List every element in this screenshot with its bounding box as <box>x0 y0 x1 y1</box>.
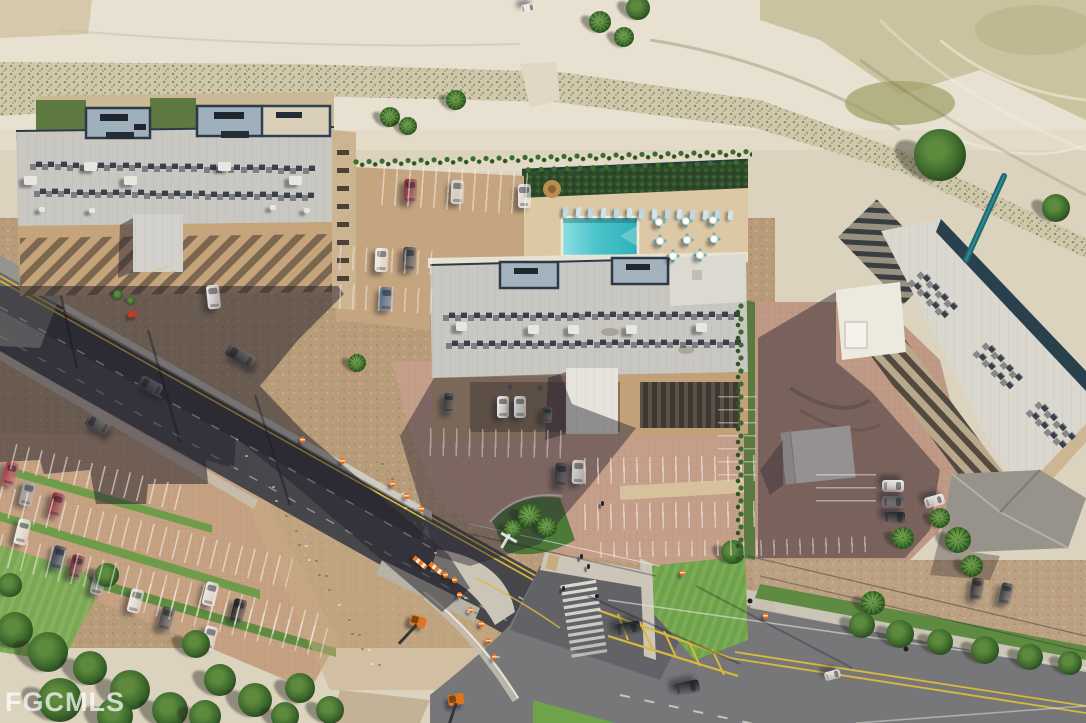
ac-unit <box>1006 381 1014 389</box>
car-rear-window <box>160 625 169 630</box>
ac-unit <box>308 192 314 198</box>
ac-unit <box>624 339 630 345</box>
palm-canopy <box>961 555 983 577</box>
ac-unit <box>661 339 667 345</box>
car <box>224 343 257 369</box>
ac-unit <box>247 164 253 170</box>
ac-unit <box>150 190 156 196</box>
palm-canopy <box>892 527 914 549</box>
ac-unit <box>548 312 554 318</box>
ac-unit <box>110 162 116 168</box>
parking-stripes <box>339 246 440 275</box>
rooftop-vent <box>528 325 539 334</box>
parking-stripes <box>816 474 876 510</box>
ac-unit <box>563 340 569 346</box>
ac-unit <box>585 311 591 317</box>
ac-unit <box>673 339 679 345</box>
ac-unit <box>587 339 593 345</box>
debris <box>381 463 384 465</box>
ac-unit <box>612 339 618 345</box>
parking-stripes <box>381 163 534 215</box>
ac-unit <box>914 282 922 290</box>
car-rear-window <box>925 499 929 506</box>
ac-unit <box>284 192 290 198</box>
ac-unit <box>1006 363 1014 371</box>
ac-unit <box>185 163 191 169</box>
pedestrian <box>580 554 583 559</box>
ac-unit <box>160 163 166 169</box>
car <box>554 463 568 487</box>
rooftop-vent <box>24 176 37 185</box>
rooftop-vent <box>456 322 467 331</box>
palm-tree <box>537 517 557 537</box>
debris <box>371 663 374 665</box>
ac-unit <box>489 340 495 346</box>
bush-canopy <box>182 630 210 658</box>
rooftop-vent <box>39 207 45 212</box>
car-windshield <box>529 4 533 10</box>
car-rear-window <box>616 626 621 635</box>
ac-unit <box>73 162 79 168</box>
ac-unit <box>923 273 931 281</box>
ac-unit <box>36 161 42 167</box>
pool-lounger <box>626 208 632 218</box>
ac-unit <box>464 340 470 346</box>
excavator-arm <box>447 702 458 723</box>
tree <box>886 620 914 648</box>
traffic-cone <box>763 613 768 619</box>
car-rear-window <box>499 413 507 416</box>
debris <box>285 515 288 517</box>
tree <box>1042 194 1070 222</box>
tree <box>0 573 22 597</box>
car <box>136 374 163 397</box>
palm-canopy <box>945 527 971 553</box>
debris <box>391 478 394 480</box>
ac-unit <box>272 191 278 197</box>
car-rear-window <box>154 386 161 395</box>
ac-unit <box>941 292 949 300</box>
rooftop-vent <box>218 162 231 171</box>
ac-unit <box>709 311 715 317</box>
debris <box>404 507 407 509</box>
tree <box>285 673 315 703</box>
ac-unit <box>932 301 940 309</box>
debris <box>348 619 351 621</box>
car-rear-window <box>972 595 980 599</box>
ac-unit <box>1041 421 1049 429</box>
ac-unit <box>573 312 579 318</box>
car <box>613 620 641 638</box>
ac-unit <box>988 344 996 352</box>
rooftop-vent <box>304 208 310 213</box>
car-rear-window <box>129 607 138 612</box>
palm-tree <box>930 508 950 528</box>
ac-unit <box>284 165 290 171</box>
debris <box>308 559 311 561</box>
palm-tree <box>961 555 983 577</box>
ac-unit <box>660 311 666 317</box>
car <box>541 407 552 424</box>
ac-unit <box>949 302 957 310</box>
ac-unit <box>199 190 205 196</box>
car-rear-window <box>675 685 680 694</box>
car-windshield <box>896 482 901 490</box>
ac-unit <box>1059 440 1067 448</box>
debris <box>295 530 298 532</box>
tree <box>189 700 221 723</box>
bush-canopy <box>1058 651 1082 675</box>
ac-unit <box>197 163 203 169</box>
tree <box>127 297 135 305</box>
palm-tree <box>892 527 914 549</box>
ac-unit <box>486 312 492 318</box>
aerial-photo: FGCMLS <box>0 0 1086 723</box>
construction-barrier <box>428 561 443 575</box>
car-windshield <box>896 498 901 506</box>
debris <box>252 456 255 458</box>
ac-unit <box>698 339 704 345</box>
car-windshield <box>973 581 982 587</box>
ac-unit <box>610 311 616 317</box>
car-rear-window <box>884 482 887 490</box>
pool-table <box>683 236 691 244</box>
ac-unit <box>138 189 144 195</box>
pool-lounger <box>702 210 708 220</box>
ac-unit <box>1059 422 1067 430</box>
debris <box>414 522 417 524</box>
debris <box>454 582 457 584</box>
palm-tree <box>945 527 971 553</box>
parking-stripes <box>430 428 562 458</box>
ac-unit <box>538 340 544 346</box>
palm-canopy <box>399 117 417 135</box>
car-windshield <box>544 409 551 413</box>
palm-canopy <box>614 27 634 47</box>
car-windshield <box>140 378 149 389</box>
car-rear-window <box>885 514 888 522</box>
bush-canopy <box>189 700 221 723</box>
debris <box>275 500 278 502</box>
debris <box>358 634 361 636</box>
rooftop-vent <box>124 176 137 185</box>
pool-table <box>709 216 717 224</box>
palm-canopy <box>348 354 366 372</box>
bush-canopy <box>886 620 914 648</box>
debris <box>444 567 447 569</box>
car-windshield <box>516 399 524 404</box>
ac-unit <box>600 339 606 345</box>
ac-unit <box>452 340 458 346</box>
tree <box>316 696 344 723</box>
debris <box>318 574 321 576</box>
rooftop-vent <box>89 208 95 213</box>
debris <box>262 471 265 473</box>
pool-lounger <box>728 210 734 220</box>
ac-unit <box>932 283 940 291</box>
palm-tree <box>348 354 366 372</box>
car-rear-window <box>516 413 524 416</box>
car-windshield <box>1003 585 1012 591</box>
palm-tree <box>446 90 466 110</box>
tree <box>626 0 650 20</box>
ac-unit <box>623 311 629 317</box>
ac-unit <box>1032 412 1040 420</box>
ac-unit <box>536 312 542 318</box>
ac-unit <box>514 340 520 346</box>
ac-unit <box>247 191 253 197</box>
ac-unit <box>135 162 141 168</box>
pool-lounger <box>639 208 645 218</box>
ac-unit <box>672 311 678 317</box>
palm-canopy <box>537 517 557 537</box>
car-rear-window <box>210 303 219 307</box>
debris <box>421 523 424 525</box>
pool-table <box>696 251 704 259</box>
rooftop-vent <box>84 162 97 171</box>
pool-table <box>669 252 677 260</box>
debris <box>487 641 490 643</box>
ac-unit <box>64 188 70 194</box>
debris <box>474 612 477 614</box>
parking-stripes <box>584 501 760 530</box>
tree <box>914 129 966 181</box>
ac-unit <box>722 311 728 317</box>
pool-lounger <box>562 207 568 217</box>
ac-unit <box>1067 432 1075 440</box>
car-rear-window <box>445 409 452 411</box>
ac-unit <box>635 311 641 317</box>
ac-unit <box>259 164 265 170</box>
ac-unit <box>1014 373 1022 381</box>
ac-unit <box>1050 413 1058 421</box>
ac-unit <box>923 291 931 299</box>
debris <box>338 604 341 606</box>
pool-lounger <box>601 208 607 218</box>
ac-unit <box>449 312 455 318</box>
ac-unit <box>1041 403 1049 411</box>
car <box>882 496 904 508</box>
palm-tree <box>614 27 634 47</box>
rooftop-vent <box>568 325 579 334</box>
tree <box>971 636 999 664</box>
ac-unit <box>474 312 480 318</box>
ac-unit <box>211 191 217 197</box>
tree <box>1017 644 1043 670</box>
traffic-cone <box>680 570 685 576</box>
traffic-cone <box>340 458 345 464</box>
construction-barrier <box>412 555 427 569</box>
pedestrian <box>562 586 565 591</box>
bush-canopy <box>113 290 123 300</box>
ac-unit <box>461 312 467 318</box>
ac-unit <box>686 339 692 345</box>
ac-unit <box>61 161 67 167</box>
car-rear-window <box>101 424 108 433</box>
ac-unit <box>499 312 505 318</box>
ac-unit <box>235 191 241 197</box>
car <box>497 396 509 418</box>
bush-canopy <box>927 629 953 655</box>
debris <box>477 626 480 628</box>
bush-canopy <box>849 612 875 638</box>
rooftop-vent <box>696 323 707 332</box>
road-mark <box>545 554 560 571</box>
pool-lounger <box>575 207 581 217</box>
pool-table <box>655 218 663 226</box>
tree <box>927 629 953 655</box>
car-rear-window <box>884 498 887 506</box>
car-rear-window <box>825 673 828 679</box>
car <box>83 412 110 435</box>
car-rear-window <box>522 6 525 11</box>
ac-unit <box>501 340 507 346</box>
car-rear-window <box>543 419 550 421</box>
ac-unit <box>296 192 302 198</box>
car <box>571 460 585 484</box>
rooftop-vent <box>626 325 637 334</box>
bush-canopy <box>1017 644 1043 670</box>
ac-unit <box>309 165 315 171</box>
tree <box>849 612 875 638</box>
ac-unit <box>162 190 168 196</box>
pedestrian <box>601 501 604 506</box>
excavator <box>447 693 465 707</box>
palm-tree <box>589 11 611 33</box>
car-windshield <box>689 682 696 692</box>
bush-canopy <box>127 297 135 305</box>
debris <box>315 560 318 562</box>
debris <box>328 589 331 591</box>
ac-unit <box>48 161 54 167</box>
car <box>672 679 700 697</box>
hedge-row <box>735 302 745 560</box>
ac-unit <box>123 162 129 168</box>
car-rear-window <box>4 480 13 485</box>
ac-unit <box>723 339 729 345</box>
ac-unit <box>637 339 643 345</box>
tree <box>271 702 299 723</box>
pool-table <box>656 237 664 245</box>
equipment <box>128 310 138 317</box>
ac-unit <box>561 312 567 318</box>
bush-canopy <box>285 673 315 703</box>
ac-unit <box>598 311 604 317</box>
ac-unit <box>511 312 517 318</box>
debris <box>424 537 427 539</box>
bush-canopy <box>914 129 966 181</box>
ac-unit <box>210 164 216 170</box>
debris <box>255 470 258 472</box>
car-rear-window <box>573 479 581 482</box>
bush-canopy <box>271 702 299 723</box>
road-mark <box>152 265 168 272</box>
parking-stripes <box>760 536 870 556</box>
traffic-cone <box>300 437 305 443</box>
ac-unit <box>997 354 1005 362</box>
ac-unit <box>477 340 483 346</box>
ac-unit <box>77 189 83 195</box>
debris <box>467 611 470 613</box>
pool-lounger <box>613 208 619 218</box>
car-windshield <box>557 466 566 472</box>
ac-unit <box>296 165 302 171</box>
ac-unit <box>89 189 95 195</box>
parking-stripes <box>339 284 440 314</box>
ac-unit <box>988 362 996 370</box>
ac-unit <box>101 189 107 195</box>
debris <box>368 649 371 651</box>
ac-unit <box>649 339 655 345</box>
ac-unit <box>685 311 691 317</box>
car-rear-window <box>556 482 564 485</box>
car <box>923 493 945 509</box>
car-windshield <box>833 670 838 677</box>
tree <box>113 290 123 300</box>
ac-unit <box>941 310 949 318</box>
palm-canopy <box>589 11 611 33</box>
ac-unit <box>98 162 104 168</box>
ac-unit <box>575 340 581 346</box>
car-windshield <box>87 416 96 427</box>
traffic-cone <box>443 572 448 578</box>
palm-canopy <box>446 90 466 110</box>
road-mark <box>163 270 176 280</box>
bush-canopy <box>0 573 22 597</box>
debris <box>325 575 328 577</box>
debris <box>351 633 354 635</box>
palm-canopy <box>930 508 950 528</box>
debris <box>464 597 467 599</box>
ac-unit <box>174 190 180 196</box>
tree <box>1058 651 1082 675</box>
car-rear-window <box>1000 599 1008 603</box>
bush-canopy <box>626 0 650 20</box>
objects-layer <box>0 0 1086 723</box>
debris <box>457 596 460 598</box>
ac-unit <box>997 372 1005 380</box>
ac-unit <box>526 340 532 346</box>
ac-unit <box>125 189 131 195</box>
rooftop-vent <box>289 176 302 185</box>
ac-unit <box>272 164 278 170</box>
tree <box>182 630 210 658</box>
ac-unit <box>40 188 46 194</box>
car <box>970 577 985 600</box>
car-windshield <box>445 396 453 400</box>
debris <box>305 545 308 547</box>
bush-canopy <box>316 696 344 723</box>
debris <box>298 544 301 546</box>
car <box>514 396 526 418</box>
traffic-cone <box>404 493 409 499</box>
ac-unit <box>260 191 266 197</box>
car-windshield <box>630 623 637 633</box>
ac-unit <box>186 190 192 196</box>
debris <box>497 656 500 658</box>
ac-unit <box>234 164 240 170</box>
car-windshield <box>897 514 902 522</box>
bush-canopy <box>1042 194 1070 222</box>
ac-unit <box>697 311 703 317</box>
car <box>882 480 904 492</box>
car <box>883 512 905 524</box>
ac-unit <box>1050 431 1058 439</box>
ac-unit <box>148 163 154 169</box>
car-windshield <box>574 463 583 469</box>
debris <box>411 508 414 510</box>
debris <box>434 552 437 554</box>
